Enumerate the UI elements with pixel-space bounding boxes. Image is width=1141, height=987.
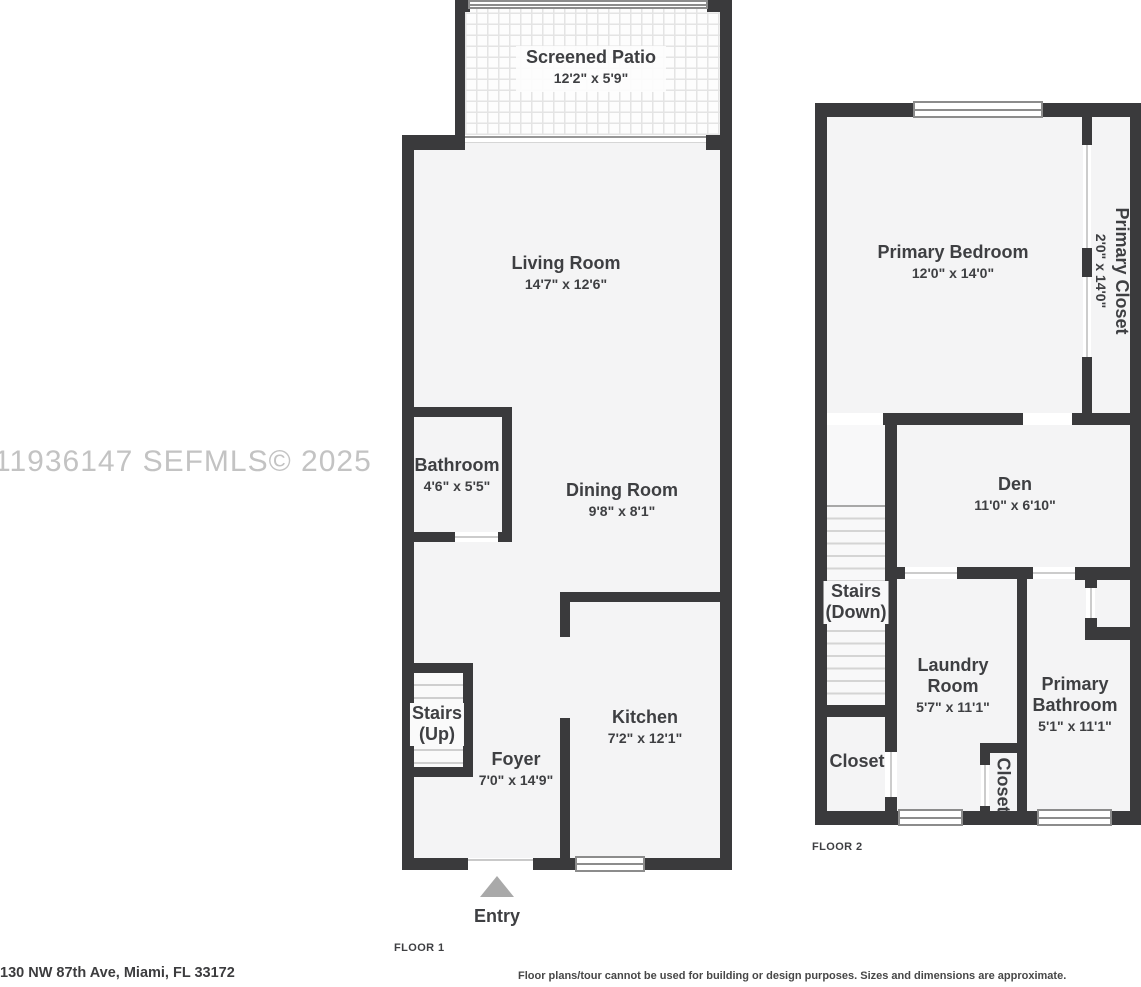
wall-segment	[455, 0, 465, 140]
wall-segment	[463, 663, 473, 777]
wall-segment	[402, 858, 468, 870]
wall-segment	[963, 811, 1037, 825]
room-label-closet: Closet	[829, 751, 884, 772]
patio-slider-opening	[465, 136, 706, 143]
bathroom-door-opening	[1033, 567, 1075, 579]
room-label-stairs-up: Stairs (Up)	[410, 703, 464, 746]
closet-door-opening	[981, 765, 989, 806]
wall-segment	[402, 767, 473, 777]
wall-segment	[1017, 579, 1027, 811]
floor2-tag: FLOOR 2	[812, 841, 862, 853]
room-label-primary-bathroom: Primary Bathroom 5'1" x 11'1"	[1028, 674, 1123, 737]
room-label-primary-bedroom: Primary Bedroom 12'0" x 14'0"	[877, 242, 1028, 284]
wall-segment	[560, 718, 570, 858]
wall-segment	[1085, 627, 1141, 640]
wall-segment	[1082, 103, 1092, 145]
wall-segment	[560, 592, 570, 637]
laundry-window	[898, 809, 963, 826]
wall-segment	[815, 103, 913, 117]
property-address: 130 NW 87th Ave, Miami, FL 33172	[0, 965, 235, 981]
room-label-dining-room: Dining Room 9'8" x 8'1"	[566, 480, 678, 522]
nook-door-opening	[1086, 588, 1095, 618]
bathroom-window	[1037, 809, 1112, 826]
wall-segment	[643, 858, 732, 870]
floor1-tag: FLOOR 1	[394, 942, 444, 954]
entry-arrow-icon	[480, 876, 514, 897]
wall-segment	[706, 135, 732, 150]
mls-watermark: 11936147 SEFMLS© 2025	[0, 445, 372, 479]
wall-segment	[1072, 413, 1141, 425]
entry-label: Entry	[474, 906, 520, 927]
room-label-stairs-down: Stairs (Down)	[824, 581, 889, 624]
room-label-screened-patio: Screened Patio 12'2" x 5'9"	[516, 46, 666, 92]
wall-segment	[893, 567, 905, 579]
disclaimer-text: Floor plans/tour cannot be used for buil…	[518, 970, 1066, 982]
floor-plan-canvas: 11936147 SEFMLS© 2025	[0, 0, 1141, 987]
wall-segment	[1085, 580, 1097, 588]
wall-segment	[562, 592, 720, 602]
room-label-foyer: Foyer 7'0" x 14'9"	[479, 749, 553, 791]
hall-opening	[1023, 413, 1072, 425]
wall-segment	[885, 797, 897, 825]
room-label-closet-2: Closet	[992, 757, 1013, 812]
wall-segment	[402, 532, 455, 542]
wall-segment	[402, 135, 414, 870]
laundry-door-opening	[905, 567, 957, 579]
wall-segment	[498, 532, 512, 542]
wall-segment	[1112, 811, 1141, 825]
bedroom-door-opening	[827, 413, 883, 425]
wall-segment	[883, 413, 1023, 425]
wall-segment	[533, 858, 577, 870]
patio-screen-window	[468, 0, 708, 9]
wall-segment	[957, 567, 1033, 579]
wall-segment	[980, 743, 990, 765]
bathroom-door-opening	[455, 532, 498, 542]
wall-segment	[980, 806, 990, 816]
wall-segment	[720, 0, 732, 870]
bedroom-window	[913, 101, 1043, 118]
stairs-landing	[827, 425, 885, 505]
room-label-bathroom: Bathroom 4'6" x 5'5"	[415, 455, 500, 497]
wall-segment	[502, 407, 512, 542]
entry-door-opening	[468, 858, 533, 870]
wall-segment	[402, 407, 512, 417]
room-label-living-room: Living Room 14'7" x 12'6"	[512, 253, 621, 295]
closet-door-opening	[885, 752, 897, 797]
room-label-kitchen: Kitchen 7'2" x 12'1"	[608, 707, 682, 749]
wall-segment	[1075, 567, 1141, 580]
room-label-primary-closet: Primary Closet 2'0" x 14'0"	[1090, 207, 1132, 334]
room-label-den: Den 11'0" x 6'10"	[974, 474, 1055, 516]
kitchen-window	[575, 856, 645, 872]
wall-segment	[815, 705, 897, 717]
wall-segment	[1043, 103, 1141, 117]
room-label-laundry-room: Laundry Room 5'7" x 11'1"	[907, 655, 999, 718]
